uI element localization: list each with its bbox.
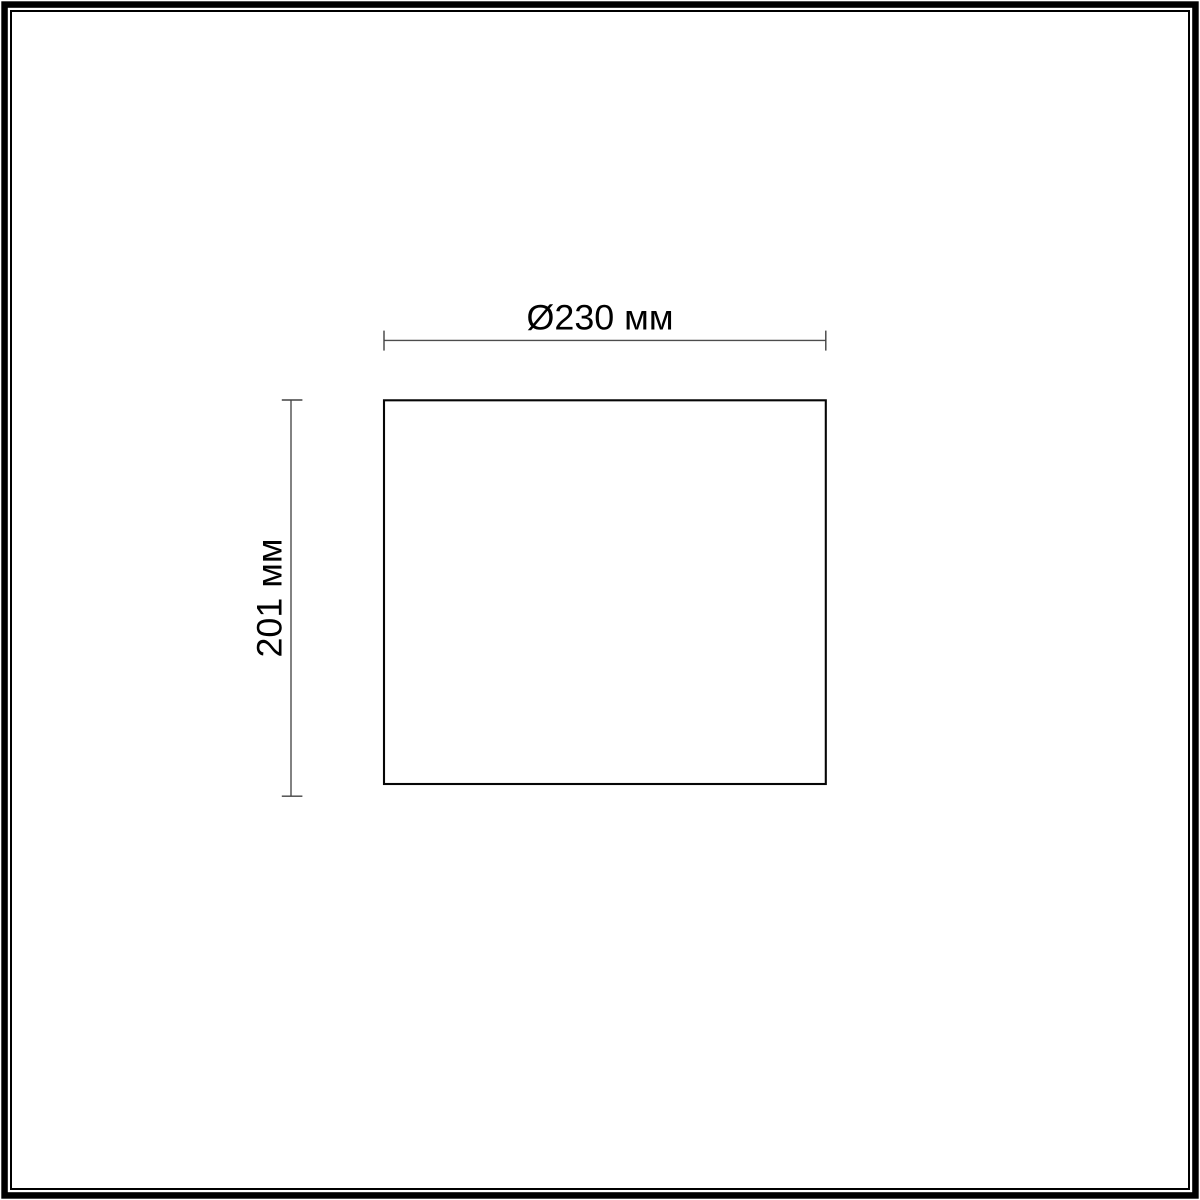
svg-text:201 мм: 201 мм <box>250 539 290 658</box>
svg-text:Ø230 мм: Ø230 мм <box>527 298 674 338</box>
